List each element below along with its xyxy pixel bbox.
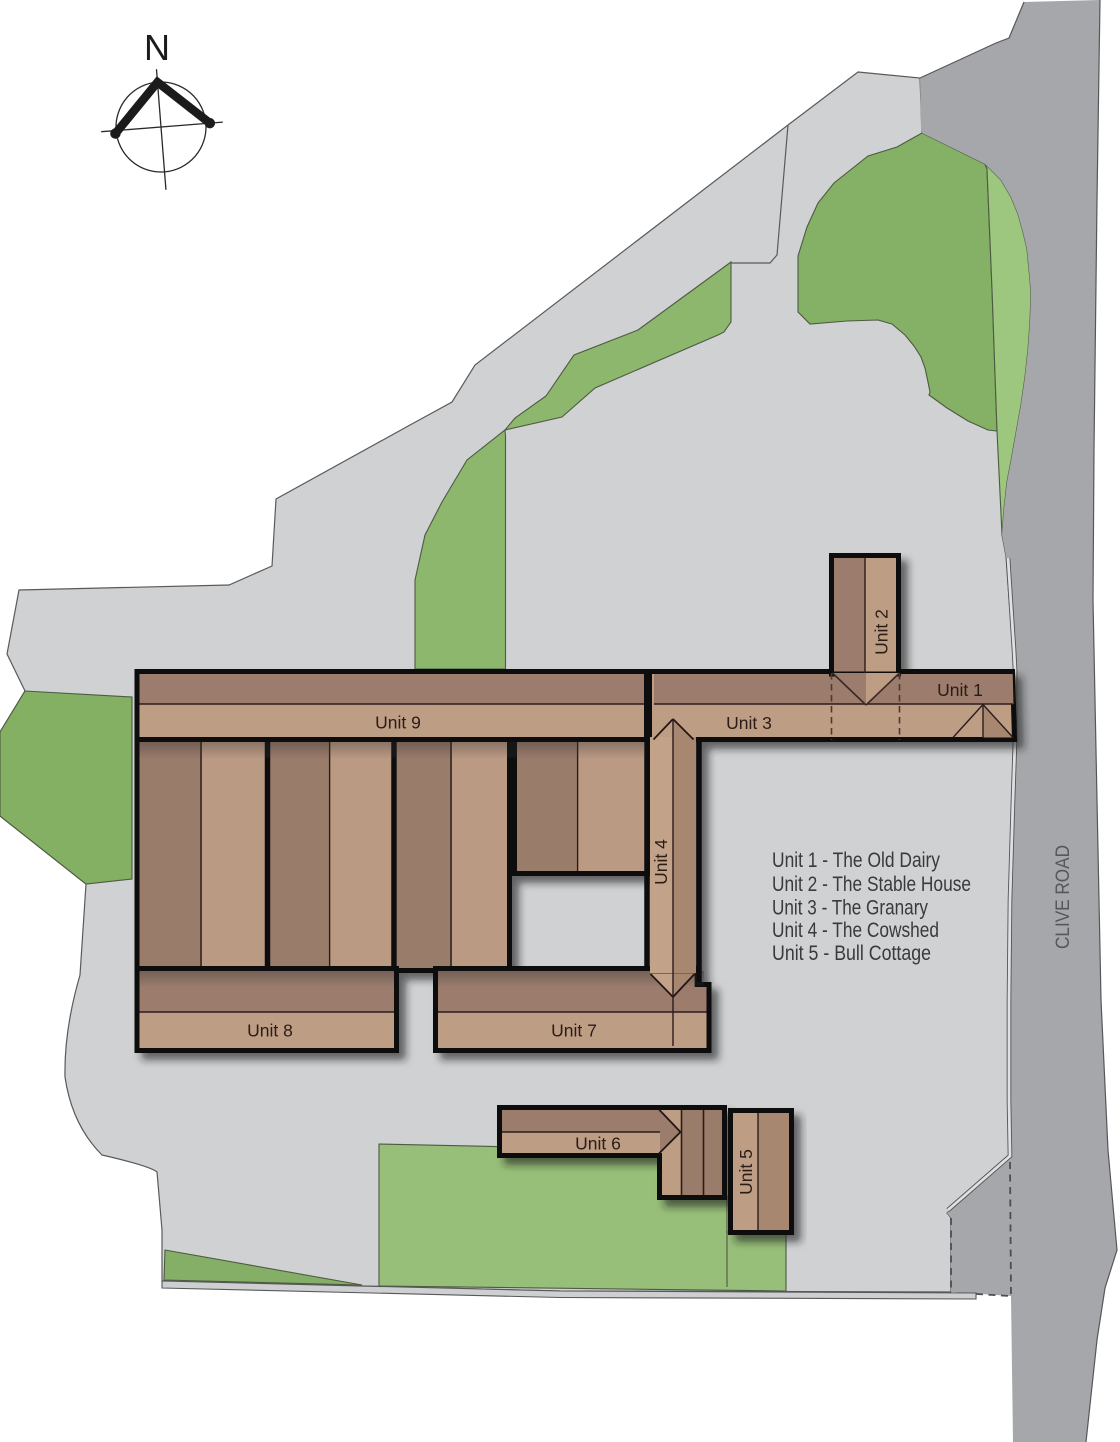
svg-text:Unit 4 - The Cowshed: Unit 4 - The Cowshed: [772, 919, 939, 942]
svg-text:Unit 2 - The Stable House: Unit 2 - The Stable House: [772, 873, 971, 896]
svg-text:Unit 5 - Bull Cottage: Unit 5 - Bull Cottage: [772, 942, 931, 965]
svg-text:Unit 6: Unit 6: [575, 1134, 621, 1154]
svg-text:Unit 1 - The Old Dairy: Unit 1 - The Old Dairy: [772, 849, 940, 872]
svg-text:Unit 3: Unit 3: [726, 713, 772, 733]
svg-text:Unit 3 - The Granary: Unit 3 - The Granary: [772, 897, 928, 920]
svg-text:N: N: [144, 27, 170, 68]
svg-text:Unit 7: Unit 7: [551, 1021, 597, 1041]
svg-text:CLIVE ROAD: CLIVE ROAD: [1052, 845, 1074, 949]
svg-text:Unit 1: Unit 1: [937, 680, 983, 700]
svg-text:Unit 9: Unit 9: [375, 713, 421, 733]
svg-text:Unit 4: Unit 4: [651, 839, 671, 885]
svg-text:Unit 2: Unit 2: [872, 609, 892, 655]
svg-text:Unit 8: Unit 8: [247, 1021, 293, 1041]
svg-text:Unit 5: Unit 5: [736, 1149, 756, 1195]
